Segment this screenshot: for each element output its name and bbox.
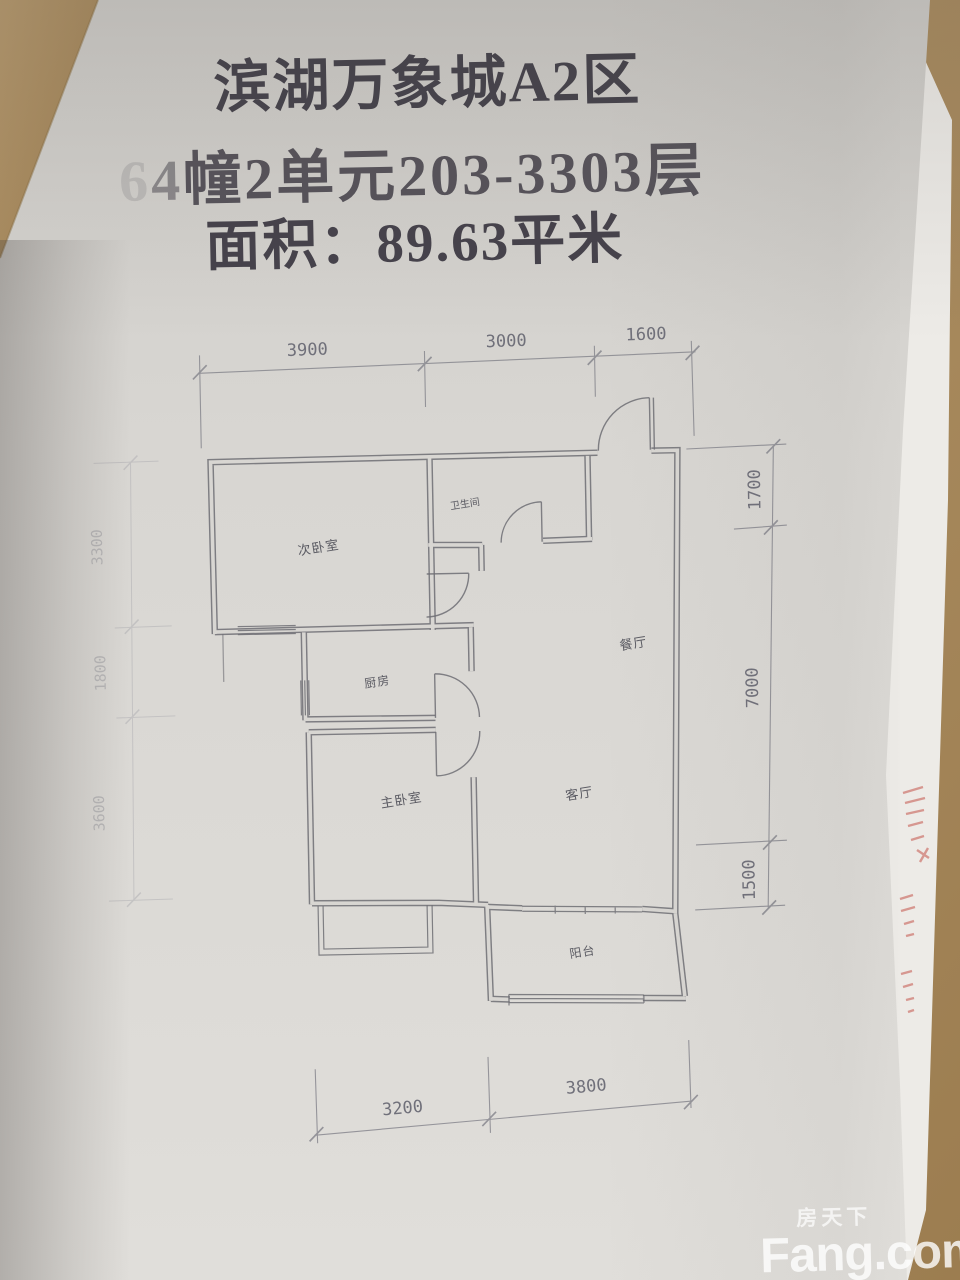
watermark-en: Fang.com [760,1224,960,1280]
dim-top-1: 3900 [286,340,328,361]
shadow-left-edge [0,240,130,1280]
wall-stub [223,634,224,682]
dim-bottom-1: 3200 [381,1097,424,1121]
floorplan-photo: 滨湖万象城A2区 64幢2单元203-3303层 面积：89.63平米 [0,0,960,1280]
photo-of-floorplan-sheet: 滨湖万象城A2区 64幢2单元203-3303层 面积：89.63平米 [0,0,960,1280]
sheen-right [600,0,900,1280]
